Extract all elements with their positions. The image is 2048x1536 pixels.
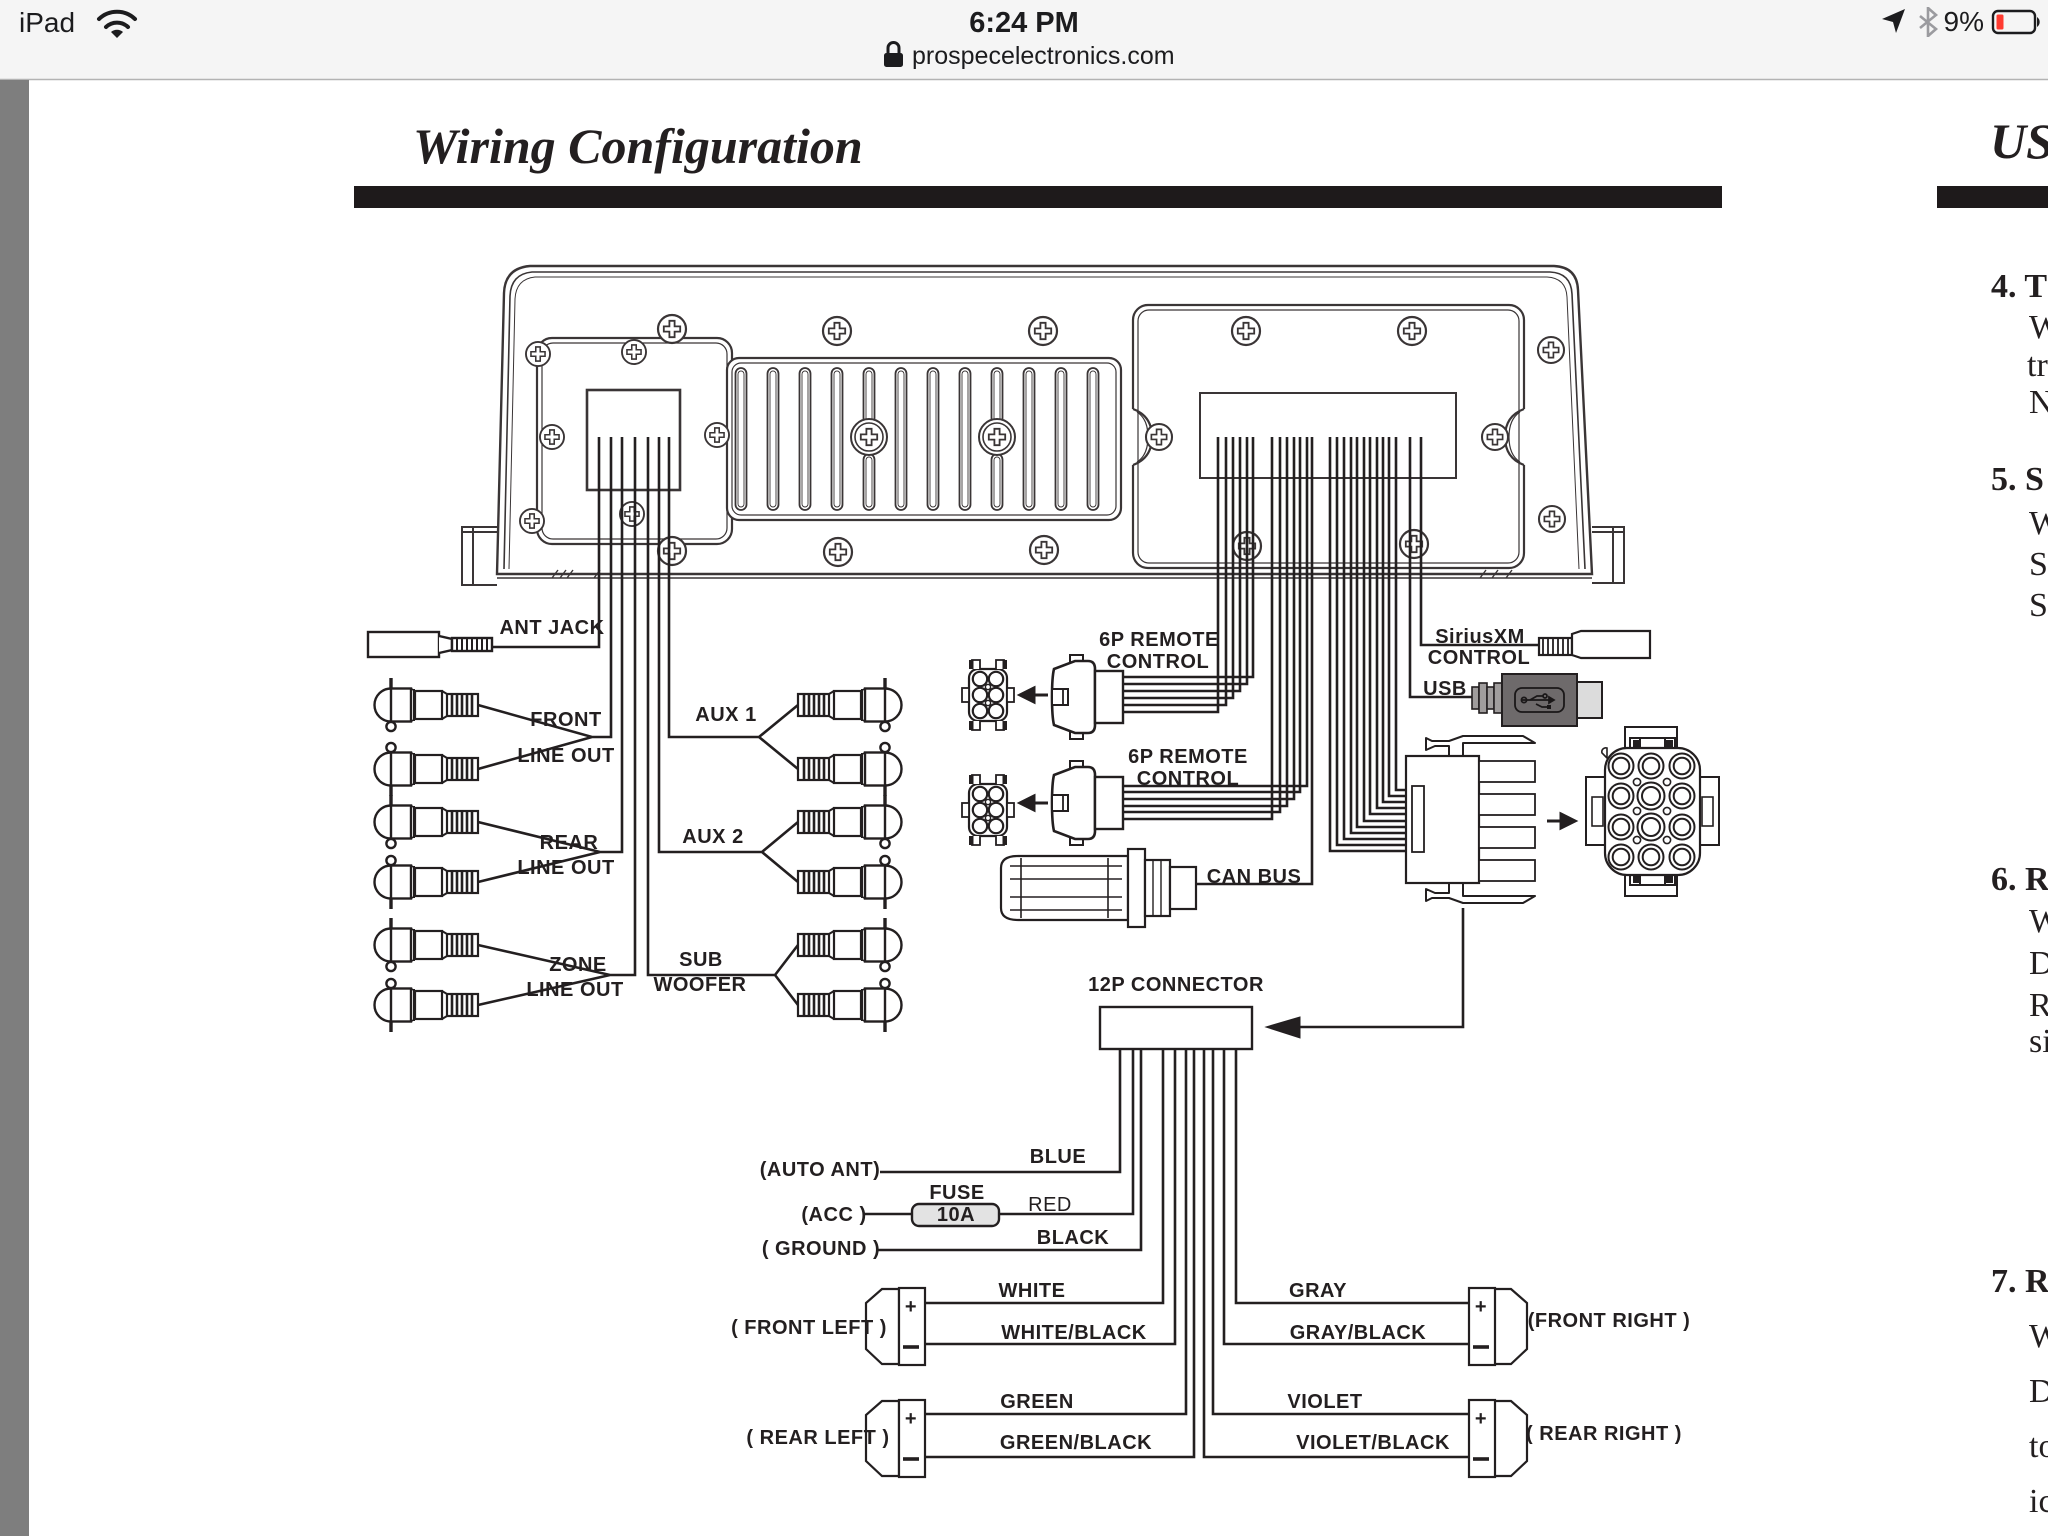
svg-text:BLACK: BLACK [1037,1227,1110,1249]
svg-text:BLUE: BLUE [1030,1146,1086,1168]
svg-text:+: + [905,1408,917,1430]
svg-text:VIOLET/BLACK: VIOLET/BLACK [1296,1432,1450,1454]
svg-text:4. T: 4. T [1991,268,2047,305]
svg-text:WHITE/BLACK: WHITE/BLACK [1001,1322,1147,1344]
svg-text:9%: 9% [1944,6,1984,37]
svg-text:+: + [905,1296,917,1318]
svg-text:GREEN/BLACK: GREEN/BLACK [1000,1432,1152,1454]
svg-text:W: W [2029,505,2048,542]
svg-text:si: si [2029,1023,2048,1060]
svg-text:LINE OUT: LINE OUT [526,979,623,1001]
svg-text:(FRONT RIGHT ): (FRONT RIGHT ) [1528,1310,1691,1332]
svg-text:SC: SC [2029,546,2048,583]
svg-text:AUX 1: AUX 1 [695,704,756,726]
svg-text:10A: 10A [937,1204,975,1226]
svg-text:CONTROL: CONTROL [1428,647,1530,669]
svg-text:CONTROL: CONTROL [1107,651,1209,673]
svg-text:USB: USB [1423,678,1467,700]
svg-text:( FRONT LEFT ): ( FRONT LEFT ) [731,1317,887,1339]
svg-text:GREEN: GREEN [1000,1391,1074,1413]
svg-text:LINE OUT: LINE OUT [517,857,614,879]
svg-text:5. S: 5. S [1991,461,2044,498]
svg-text:12P CONNECTOR: 12P CONNECTOR [1088,974,1264,996]
svg-text:R: R [2029,987,2048,1024]
svg-text:6. R: 6. R [1991,861,2048,898]
svg-text:VIOLET: VIOLET [1287,1391,1362,1413]
svg-text:+: + [1475,1408,1487,1430]
svg-text:to: to [2029,1428,2048,1465]
svg-text:SiriusXM: SiriusXM [1435,626,1525,648]
svg-text:ZONE: ZONE [549,954,607,976]
svg-text:SUB: SUB [679,949,723,971]
svg-text:N: N [2029,384,2048,421]
svg-text:FRONT: FRONT [530,709,601,731]
svg-text:LINE OUT: LINE OUT [517,745,614,767]
svg-text:CAN BUS: CAN BUS [1207,866,1302,888]
svg-text:prospecelectronics.com: prospecelectronics.com [912,42,1175,70]
svg-text:GRAY: GRAY [1289,1280,1347,1302]
svg-text:FUSE: FUSE [929,1182,984,1204]
svg-text:US: US [1990,113,2048,169]
svg-text:( REAR LEFT ): ( REAR LEFT ) [746,1427,889,1449]
svg-text:WOOFER: WOOFER [654,974,747,996]
svg-text:6P REMOTE: 6P REMOTE [1128,746,1248,768]
svg-text:Se: Se [2029,587,2048,624]
svg-text:( GROUND ): ( GROUND ) [762,1238,880,1260]
svg-text:(AUTO ANT): (AUTO ANT) [760,1159,881,1181]
svg-text:( REAR RIGHT ): ( REAR RIGHT ) [1526,1423,1682,1445]
svg-text:tra: tra [2027,347,2048,384]
svg-text:AUX 2: AUX 2 [682,826,743,848]
svg-text:W: W [2029,903,2048,940]
svg-text:ANT JACK: ANT JACK [499,617,604,639]
svg-text:7. R: 7. R [1991,1263,2048,1300]
svg-text:D: D [2029,1373,2048,1410]
svg-text:RED: RED [1028,1194,1072,1216]
svg-text:Wiring Configuration: Wiring Configuration [413,118,863,174]
svg-text:REAR: REAR [540,832,599,854]
svg-text:GRAY/BLACK: GRAY/BLACK [1290,1322,1427,1344]
svg-text:D: D [2029,945,2048,982]
svg-text:ic: ic [2029,1483,2048,1520]
svg-text:(ACC ): (ACC ) [801,1204,866,1226]
svg-text:CONTROL: CONTROL [1137,768,1239,790]
svg-text:+: + [1475,1296,1487,1318]
svg-text:W: W [2029,1318,2048,1355]
svg-text:WHITE: WHITE [999,1280,1066,1302]
svg-text:iPad: iPad [19,7,75,38]
svg-text:6:24 PM: 6:24 PM [969,7,1079,39]
svg-text:W: W [2029,309,2048,346]
svg-text:6P REMOTE: 6P REMOTE [1099,629,1219,651]
